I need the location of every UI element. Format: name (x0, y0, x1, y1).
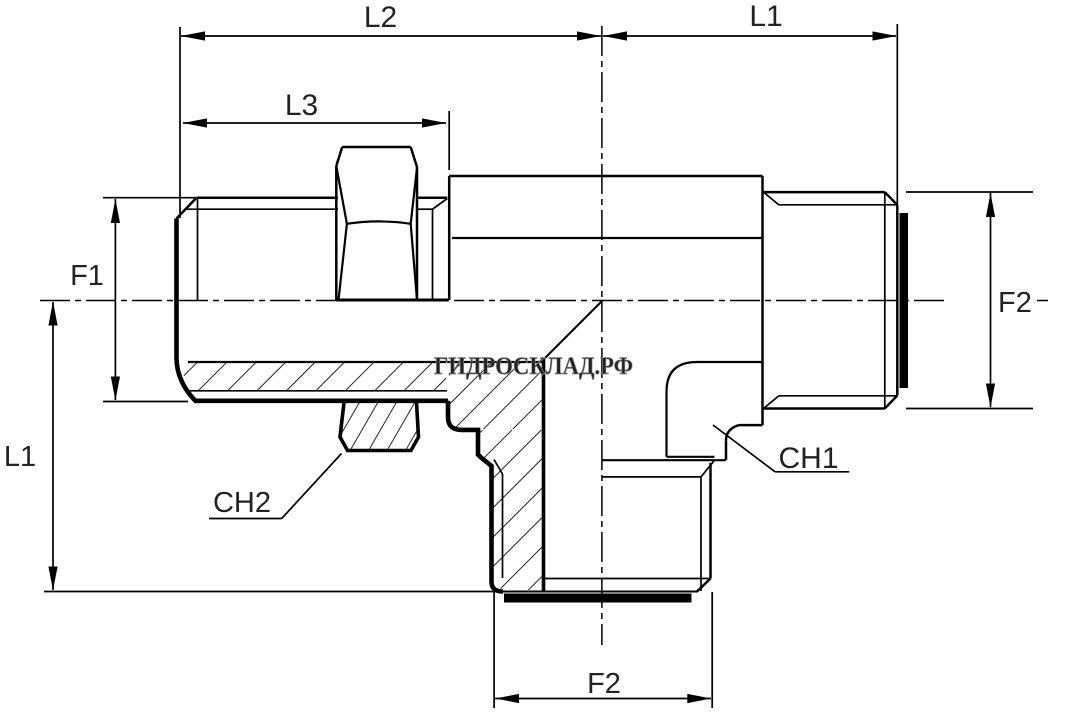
svg-text:F2: F2 (587, 668, 621, 700)
svg-text:CH1: CH1 (778, 442, 838, 475)
svg-text:F1: F1 (70, 260, 104, 292)
svg-text:ГИДРОСКЛАД.РФ: ГИДРОСКЛАД.РФ (434, 353, 633, 380)
svg-text:CH2: CH2 (213, 487, 271, 519)
svg-text:L1: L1 (749, 0, 782, 33)
svg-text:L3: L3 (285, 89, 318, 122)
svg-text:F2: F2 (998, 287, 1032, 319)
svg-text:L1: L1 (4, 441, 36, 473)
svg-text:L2: L2 (364, 1, 397, 34)
